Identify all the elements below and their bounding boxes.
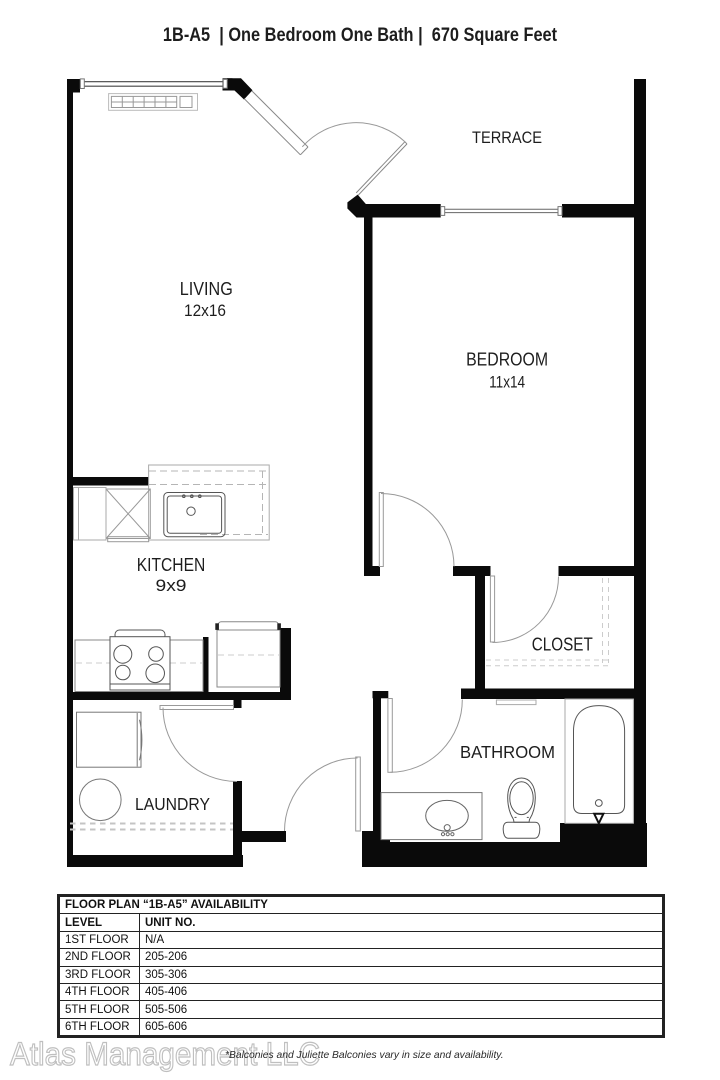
svg-text:CLOSET: CLOSET <box>532 635 593 655</box>
svg-text:LIVING: LIVING <box>180 279 233 299</box>
svg-text:BEDROOM: BEDROOM <box>466 350 548 370</box>
svg-text:KITCHEN: KITCHEN <box>137 555 206 575</box>
svg-text:LAUNDRY: LAUNDRY <box>135 794 210 814</box>
svg-text:BATHROOM: BATHROOM <box>460 742 555 762</box>
svg-text:TERRACE: TERRACE <box>472 129 542 147</box>
svg-text:11x14: 11x14 <box>489 374 525 392</box>
svg-text:9x9: 9x9 <box>156 577 187 595</box>
svg-text:12x16: 12x16 <box>184 302 226 320</box>
